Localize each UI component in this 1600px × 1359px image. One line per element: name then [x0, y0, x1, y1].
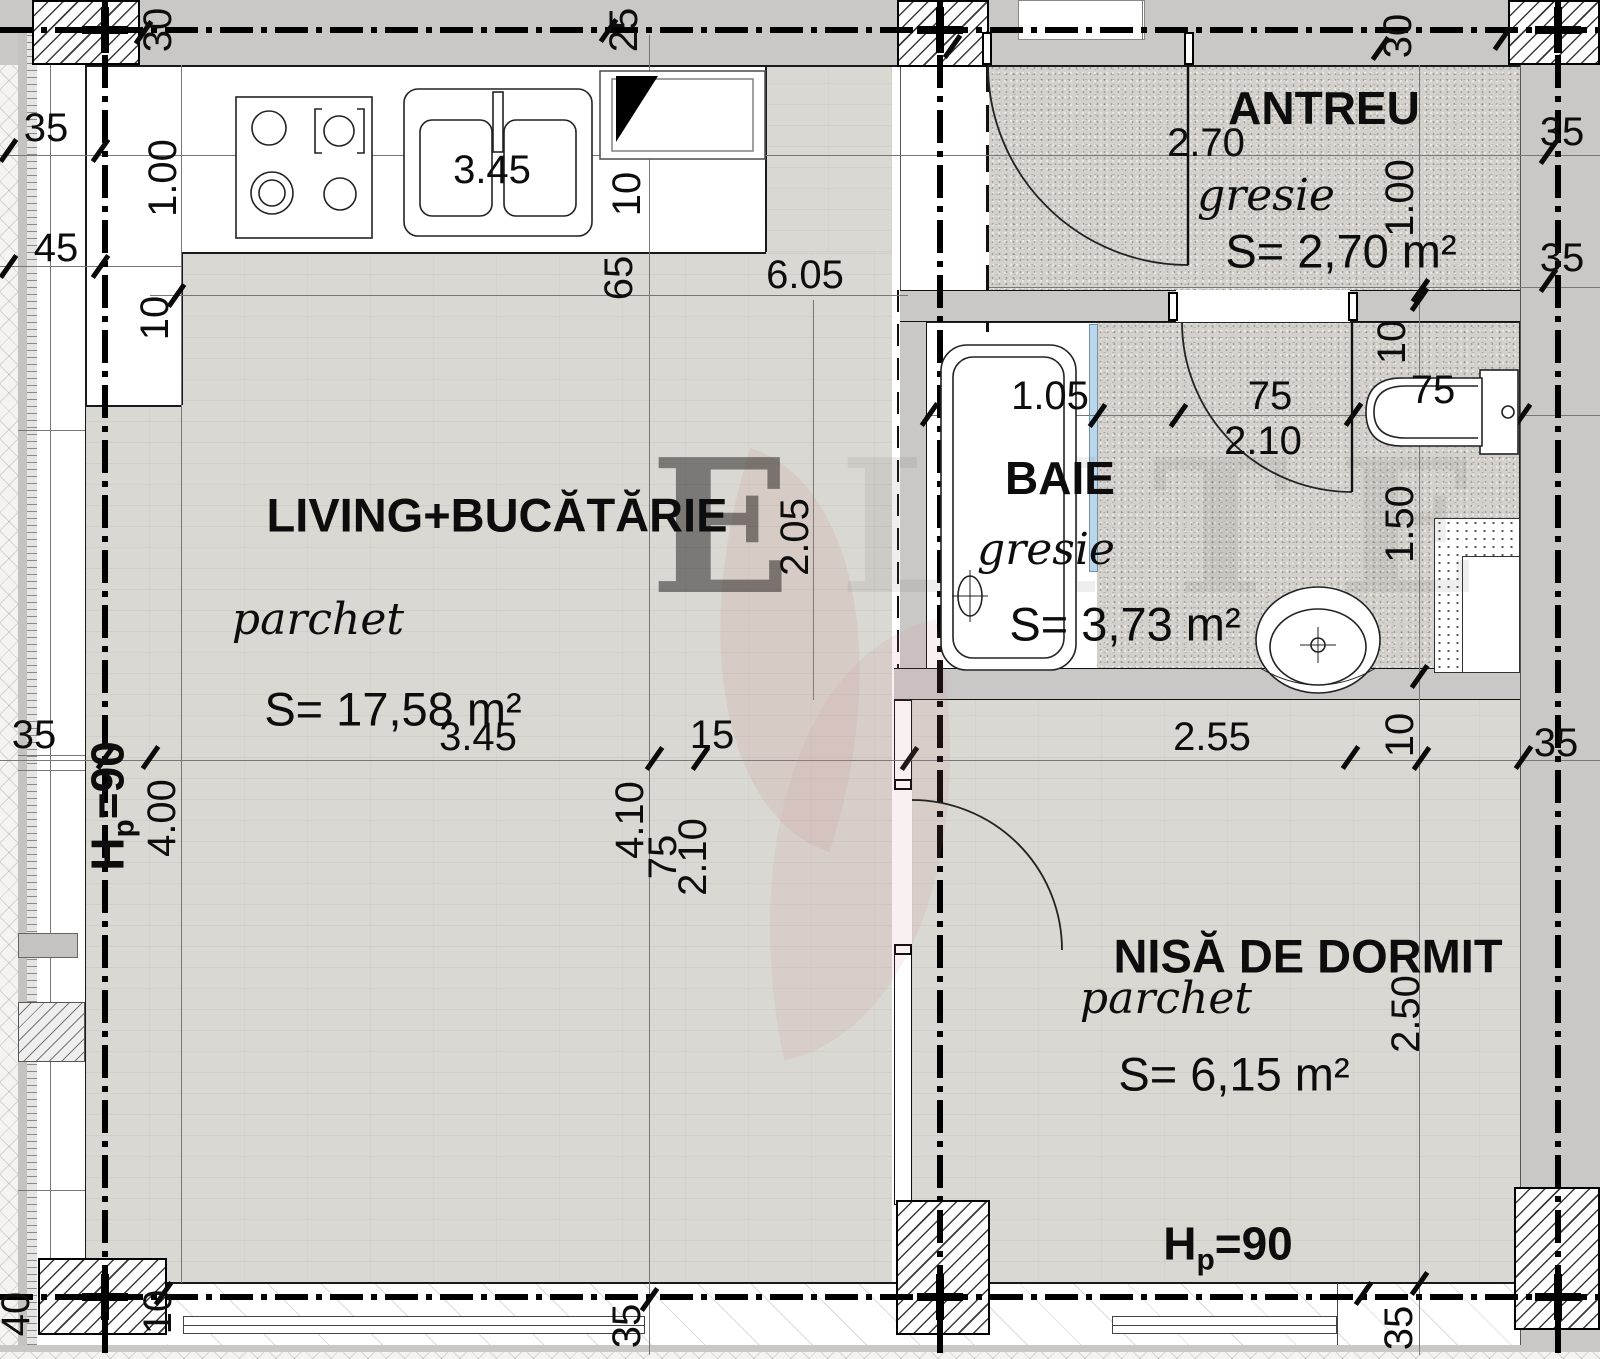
dim-left-45: 45	[34, 228, 79, 268]
sink-faucet	[493, 92, 503, 152]
baie-title: BAIE	[1005, 455, 1115, 501]
dim-top-25: 25	[604, 8, 644, 53]
dim-left-100: 1.00	[143, 139, 183, 217]
dim-baie-door-210: 2.10	[1224, 421, 1302, 461]
dim-top-30-right: 30	[1378, 14, 1418, 59]
dim-chain-255: 2.55	[1173, 717, 1251, 757]
floor-plan: ELITE	[0, 0, 1600, 1359]
dim-right-10-top: 10	[1372, 320, 1412, 365]
dim-right-100: 1.00	[1380, 159, 1420, 237]
dim-chain-15: 15	[690, 715, 735, 755]
dim-toilet-75: 75	[1411, 370, 1456, 410]
dim-mid-65: 65	[599, 256, 639, 301]
nisa-floor-label: parchet	[1080, 977, 1252, 1021]
dim-top-30-left: 30	[138, 8, 178, 53]
nisa-door-arc	[912, 800, 1062, 950]
fixtures-layer	[0, 0, 1600, 1359]
toilet-button	[1502, 406, 1514, 418]
dim-chain-35r: 35	[1534, 723, 1579, 763]
nisa-area: S= 6,15 m²	[1118, 1051, 1349, 1098]
dim-antreu-270: 2.70	[1167, 123, 1245, 163]
dim-nisa-door-210: 2.10	[673, 818, 713, 896]
dim-chain-10: 10	[1380, 713, 1420, 758]
dim-left-35: 35	[24, 108, 69, 148]
antreu-door-arc	[988, 65, 1188, 265]
dim-605: 6.05	[766, 255, 844, 295]
dim-chain-35l: 35	[12, 715, 57, 755]
dim-bottom-35a: 35	[607, 1304, 647, 1349]
dim-bottom-40: 40	[0, 1292, 36, 1337]
dim-bottom-35b: 35	[1379, 1306, 1419, 1351]
dim-left-10: 10	[135, 296, 175, 341]
dim-right-35b: 35	[1540, 238, 1585, 278]
antreu-title: ANTREU	[1228, 85, 1420, 131]
dim-400: 4.00	[142, 779, 182, 857]
dim-right-150: 1.50	[1380, 485, 1420, 563]
hp-label-right: Hp=90	[1163, 1220, 1293, 1275]
dim-baie-door-75: 75	[1248, 376, 1293, 416]
baie-area: S= 3,73 m²	[1009, 601, 1240, 648]
baie-floor-label: gresie	[977, 528, 1115, 572]
living-floor-label: parchet	[232, 598, 404, 642]
stove	[236, 97, 372, 238]
dim-baie-105: 1.05	[1011, 376, 1089, 416]
dim-250: 2.50	[1386, 975, 1426, 1053]
dim-mid-10: 10	[607, 172, 647, 217]
hp-label-left: Hp=90	[84, 741, 139, 871]
dim-chain-345: 3.45	[439, 717, 517, 757]
dim-sink-345: 3.45	[453, 150, 531, 190]
living-title: LIVING+BUCĂTĂRIE	[267, 492, 728, 539]
dim-bottom-10: 10	[138, 1290, 178, 1335]
dim-right-35a: 35	[1540, 112, 1585, 152]
dim-205: 2.05	[775, 498, 815, 576]
antreu-floor-label: gresie	[1197, 174, 1335, 218]
